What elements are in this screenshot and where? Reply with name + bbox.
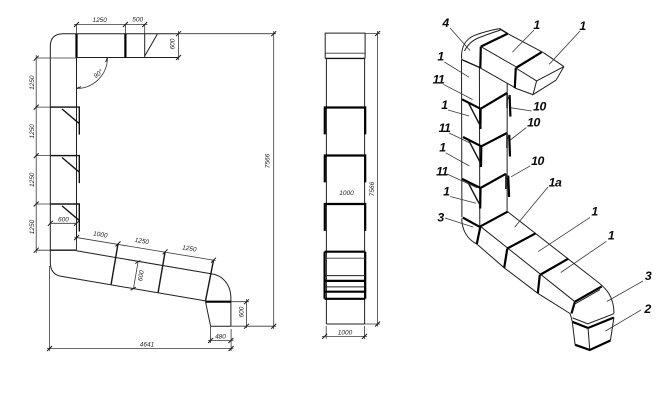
svg-text:3: 3 [645,269,652,283]
svg-text:3: 3 [437,211,444,225]
svg-text:500: 500 [132,16,143,23]
svg-text:1250: 1250 [29,172,36,187]
svg-text:1250: 1250 [29,75,36,90]
svg-text:4641: 4641 [140,341,155,348]
svg-text:1000: 1000 [338,329,353,336]
svg-text:11: 11 [436,165,448,179]
svg-text:1a: 1a [549,176,562,190]
svg-text:10: 10 [527,116,540,130]
svg-text:600: 600 [58,216,69,223]
svg-text:1: 1 [591,205,598,219]
svg-text:1250: 1250 [29,124,36,139]
svg-text:1: 1 [608,229,615,243]
svg-text:10: 10 [531,154,544,168]
svg-text:7566: 7566 [264,153,271,168]
svg-text:1000: 1000 [339,190,354,197]
svg-text:1: 1 [443,184,450,198]
svg-text:10: 10 [533,100,546,114]
svg-text:1250: 1250 [29,219,36,234]
svg-text:480: 480 [215,333,226,340]
svg-text:4: 4 [441,16,449,30]
svg-text:1250: 1250 [92,17,107,24]
svg-text:1: 1 [533,18,540,32]
svg-text:1: 1 [579,19,586,33]
svg-text:1: 1 [437,50,444,64]
svg-text:1: 1 [439,140,446,154]
svg-text:11: 11 [433,72,445,86]
svg-text:7566: 7566 [369,181,376,196]
svg-text:600: 600 [239,306,246,317]
svg-text:1: 1 [441,98,448,112]
svg-text:600: 600 [170,38,177,49]
svg-text:11: 11 [439,121,451,135]
svg-text:2: 2 [643,302,651,316]
